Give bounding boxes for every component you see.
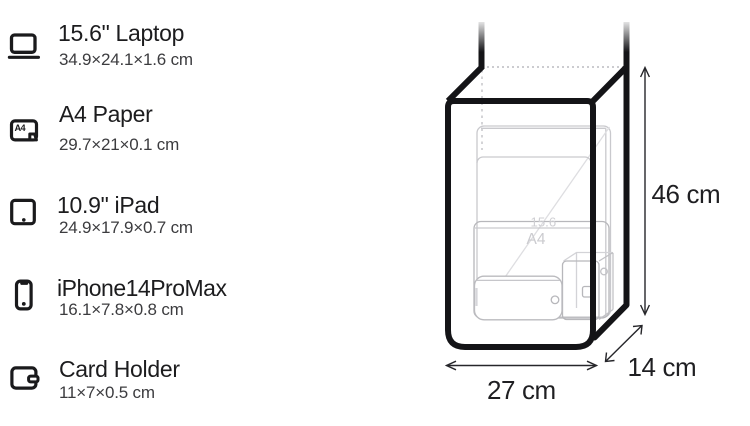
svg-text:A4: A4	[527, 231, 546, 248]
svg-text:15.6: 15.6	[531, 214, 557, 229]
